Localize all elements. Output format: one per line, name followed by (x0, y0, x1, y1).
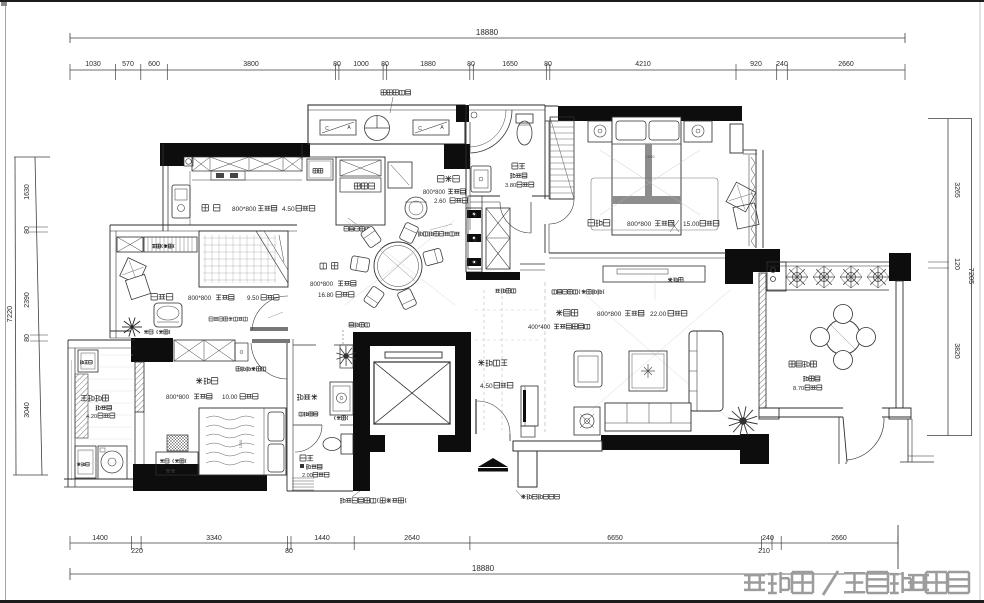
svg-text:3820: 3820 (953, 343, 960, 359)
svg-text:4.50: 4.50 (282, 206, 295, 213)
svg-text:800*800: 800*800 (232, 206, 257, 213)
svg-text:600: 600 (148, 61, 160, 68)
svg-text:1630: 1630 (24, 184, 31, 200)
svg-text:4210: 4210 (635, 61, 651, 68)
svg-text:C: C (418, 126, 422, 132)
svg-text:8.70: 8.70 (793, 386, 804, 392)
svg-text:80: 80 (285, 548, 293, 555)
svg-text:3265: 3265 (953, 182, 960, 198)
svg-text:1880: 1880 (420, 61, 436, 68)
svg-text:2390: 2390 (24, 292, 31, 308)
svg-text:9.50: 9.50 (247, 295, 260, 302)
svg-text:1000: 1000 (353, 61, 369, 68)
svg-text:6650: 6650 (607, 535, 623, 542)
svg-text:800*800: 800*800 (423, 190, 446, 196)
svg-text:10.00: 10.00 (222, 394, 238, 401)
svg-text:80: 80 (381, 61, 389, 68)
svg-text:400*400: 400*400 (528, 325, 551, 331)
svg-text:7205: 7205 (967, 268, 976, 285)
svg-text:2660: 2660 (838, 61, 854, 68)
svg-text:80: 80 (467, 61, 475, 68)
svg-text:1500: 1500 (239, 440, 243, 448)
svg-text:120: 120 (953, 258, 960, 270)
svg-text:2640: 2640 (404, 535, 420, 542)
svg-text:1030: 1030 (85, 61, 101, 68)
svg-text:80: 80 (24, 334, 31, 342)
svg-text:80: 80 (544, 61, 552, 68)
svg-text:920: 920 (750, 61, 762, 68)
svg-text:3040: 3040 (24, 402, 31, 418)
svg-text:1800: 1800 (646, 154, 656, 159)
svg-text:2660: 2660 (831, 535, 847, 542)
svg-text:240: 240 (762, 535, 774, 542)
svg-text:220: 220 (131, 548, 143, 555)
svg-text:800*800: 800*800 (188, 295, 212, 302)
svg-text:22.00: 22.00 (650, 311, 667, 318)
svg-text:3800: 3800 (243, 61, 259, 68)
svg-text:18880: 18880 (472, 564, 495, 573)
svg-text:800*800: 800*800 (597, 311, 622, 318)
svg-text:2.60: 2.60 (434, 199, 446, 205)
svg-text:4.50: 4.50 (480, 383, 493, 390)
svg-text:1440: 1440 (314, 535, 330, 542)
svg-text:80: 80 (24, 226, 31, 234)
svg-text:800*800: 800*800 (166, 394, 190, 401)
svg-text:800*800: 800*800 (310, 281, 334, 288)
svg-text:15.00: 15.00 (683, 221, 700, 228)
svg-text:1400: 1400 (92, 535, 108, 542)
svg-text:570: 570 (122, 61, 134, 68)
svg-text:800*800: 800*800 (627, 221, 652, 228)
svg-text:3.80: 3.80 (505, 183, 516, 189)
svg-text:16.80: 16.80 (318, 292, 334, 299)
svg-text:C: C (325, 126, 329, 132)
svg-text:210: 210 (758, 548, 770, 555)
svg-text:1650: 1650 (502, 61, 518, 68)
svg-text:3340: 3340 (206, 535, 222, 542)
svg-text:80: 80 (333, 61, 341, 68)
svg-text:18880: 18880 (476, 28, 499, 37)
svg-text:240: 240 (776, 61, 788, 68)
svg-text:7220: 7220 (5, 306, 14, 323)
